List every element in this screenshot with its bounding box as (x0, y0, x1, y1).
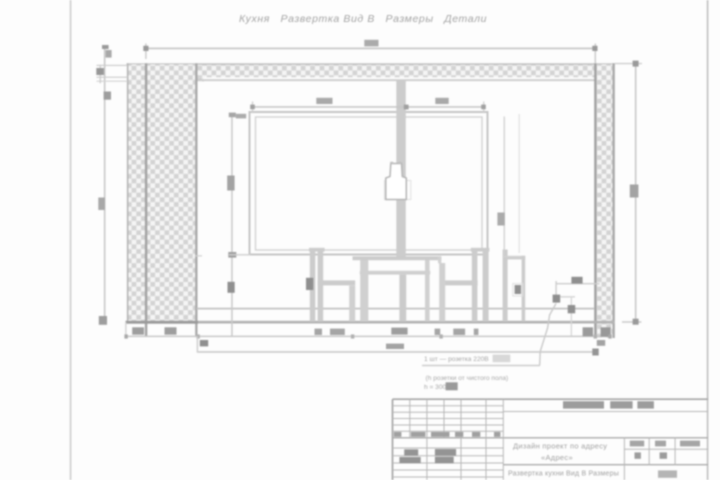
svg-text:1 шт — розетка 220В: 1 шт — розетка 220В (424, 356, 489, 363)
svg-text:Развертка кухни Вид В Размер: Развертка кухни Вид В Размеры (508, 470, 619, 477)
svg-text:Кухня Развертка Вид В Разм: Кухня Развертка Вид В Размеры Детали (239, 13, 487, 25)
svg-text:h = 300: h = 300 (424, 384, 447, 391)
svg-text:Дизайн проект по адресу: Дизайн проект по адресу (513, 441, 607, 450)
svg-text:(h розетки от чистого пола): (h розетки от чистого пола) (426, 375, 509, 382)
svg-text:«Адрес»: «Адрес» (541, 453, 573, 462)
